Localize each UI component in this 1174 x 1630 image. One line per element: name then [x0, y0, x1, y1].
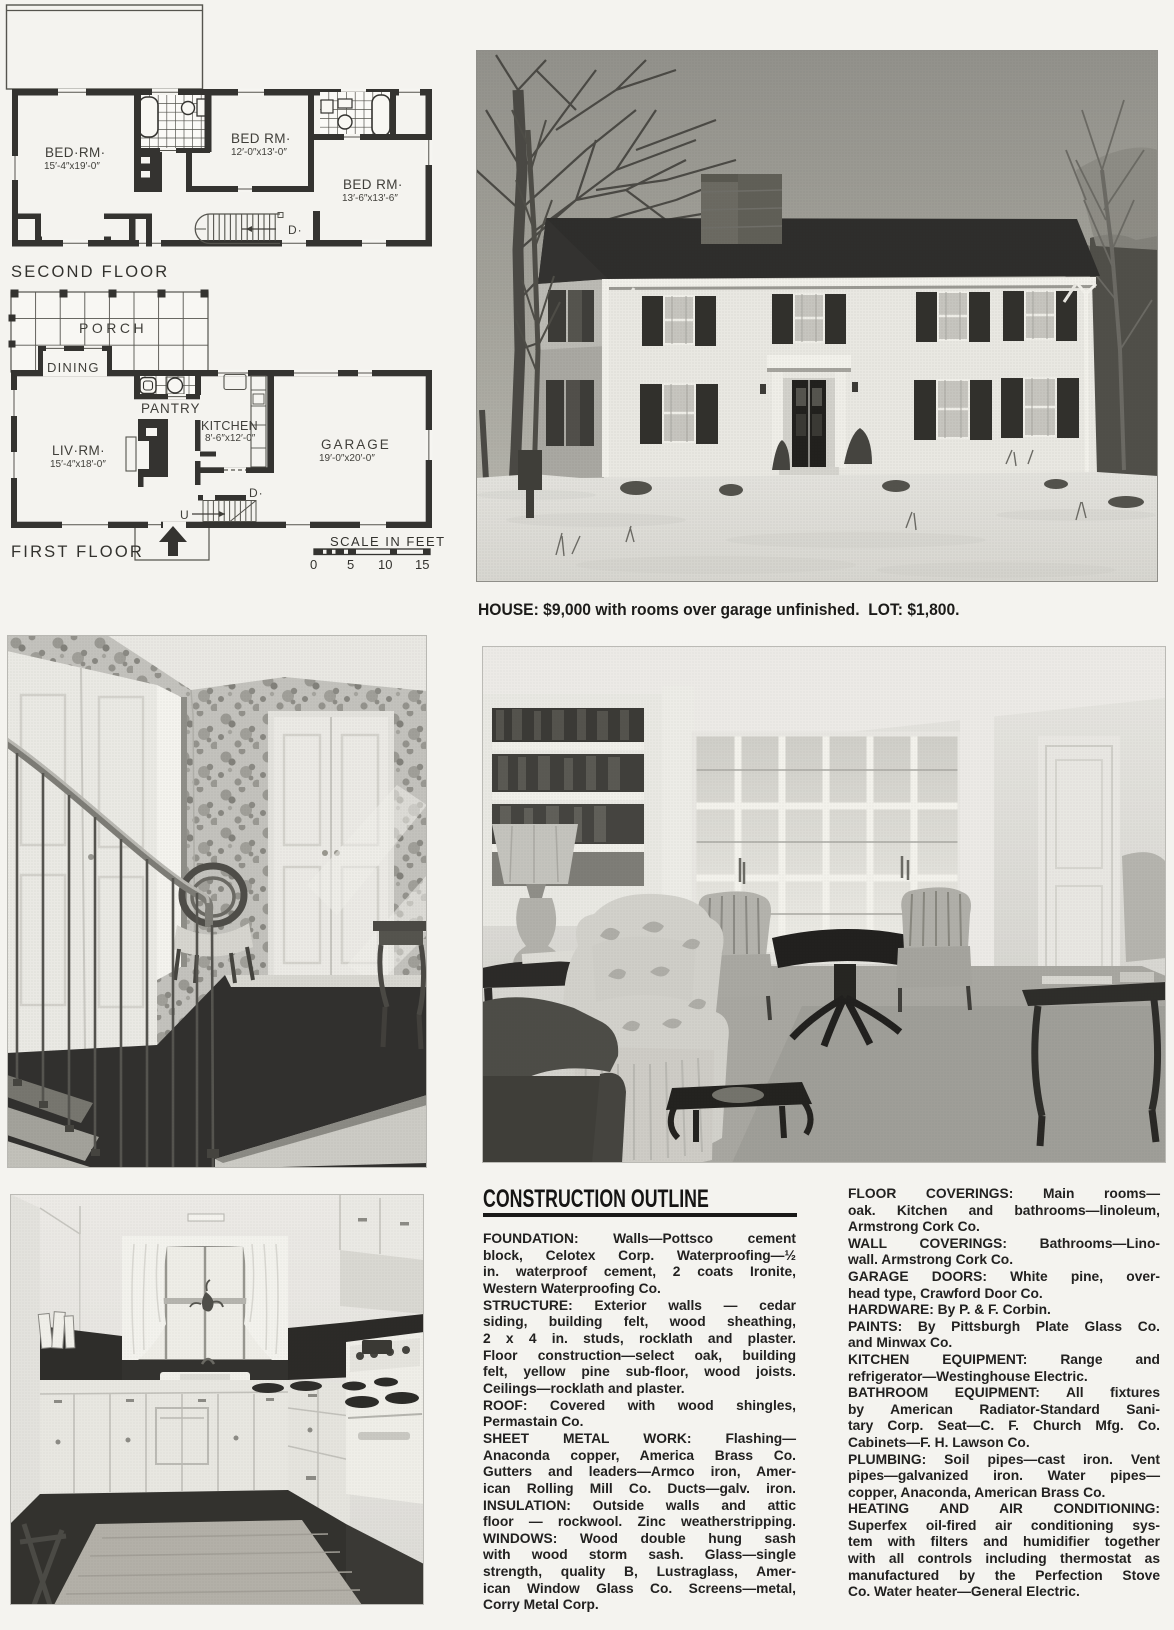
svg-text:D·: D·	[249, 486, 264, 500]
svg-text:U: U	[180, 508, 190, 522]
svg-text:BED RM·: BED RM·	[231, 131, 291, 146]
svg-text:BED RM·: BED RM·	[343, 177, 403, 192]
svg-text:GARAGE: GARAGE	[321, 437, 391, 452]
svg-text:8′-6″x12′-0″: 8′-6″x12′-0″	[205, 433, 256, 444]
svg-text:15: 15	[415, 557, 429, 572]
svg-text:15′-4″x19′-0″: 15′-4″x19′-0″	[44, 161, 100, 172]
svg-text:SECOND FLOOR: SECOND FLOOR	[11, 263, 169, 281]
svg-text:PORCH: PORCH	[79, 320, 147, 336]
svg-text:13′-6″x13′-6″: 13′-6″x13′-6″	[342, 193, 398, 204]
svg-text:5: 5	[347, 557, 354, 572]
svg-text:12′-0″x13′-0″: 12′-0″x13′-0″	[231, 147, 287, 158]
svg-text:FIRST FLOOR: FIRST FLOOR	[11, 543, 144, 561]
svg-text:D·: D·	[288, 223, 303, 237]
svg-text:0: 0	[310, 557, 317, 572]
svg-text:LIV·RM·: LIV·RM·	[52, 443, 105, 458]
svg-text:19′-0″x20′-0″: 19′-0″x20′-0″	[319, 453, 375, 464]
svg-text:10: 10	[378, 557, 392, 572]
svg-text:SCALE IN FEET: SCALE IN FEET	[330, 534, 446, 549]
svg-text:15′-4″x18′-0″: 15′-4″x18′-0″	[50, 459, 106, 470]
svg-text:PANTRY: PANTRY	[141, 401, 201, 416]
svg-text:DINING: DINING	[47, 360, 100, 375]
svg-text:BED·RM·: BED·RM·	[45, 145, 106, 160]
svg-text:KITCHEN: KITCHEN	[201, 419, 258, 433]
